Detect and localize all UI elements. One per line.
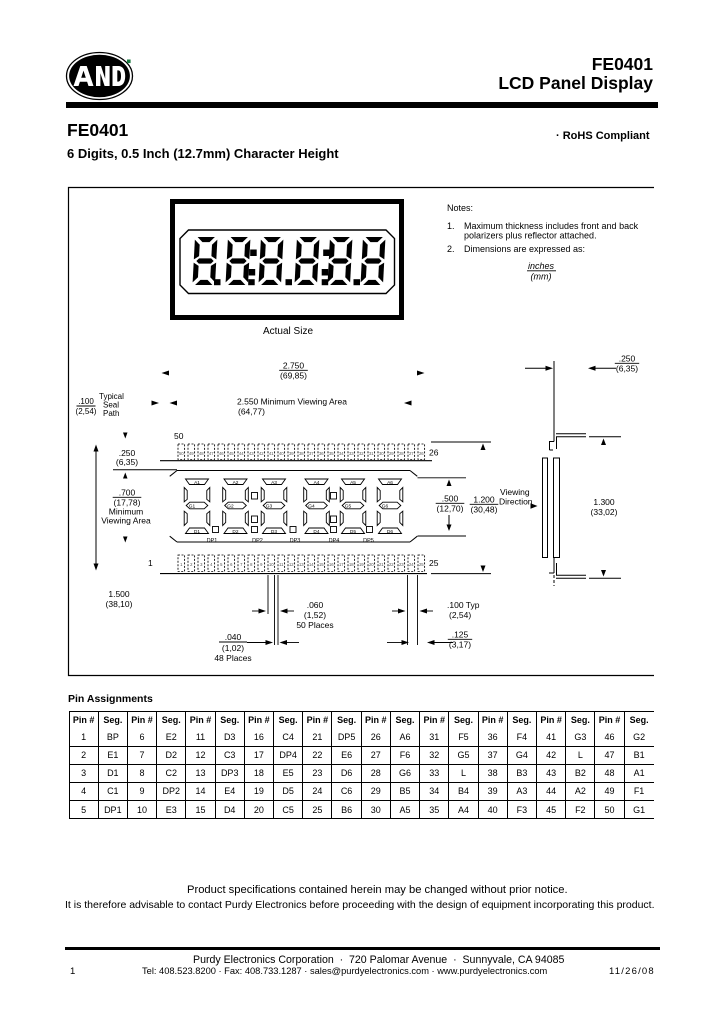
svg-text:36: 36 xyxy=(319,451,324,456)
svg-text:D3: D3 xyxy=(271,529,277,535)
svg-text:.100 Typ: .100 Typ xyxy=(447,600,480,610)
svg-text:DP3: DP3 xyxy=(290,538,301,544)
svg-text:31: 31 xyxy=(369,451,374,456)
svg-text:11: 11 xyxy=(279,562,284,567)
svg-text:A5: A5 xyxy=(350,480,356,486)
svg-text:(12,70): (12,70) xyxy=(437,504,464,514)
svg-text:48: 48 xyxy=(199,451,204,456)
svg-text:12: 12 xyxy=(289,562,294,567)
svg-text:Maximum thickness includes fro: Maximum thickness includes front and bac… xyxy=(464,221,639,231)
svg-text:46: 46 xyxy=(219,451,224,456)
svg-text:(mm): (mm) xyxy=(531,272,552,282)
svg-text:G2: G2 xyxy=(227,504,234,510)
svg-text:.250: .250 xyxy=(619,354,636,364)
svg-text:D6: D6 xyxy=(387,529,393,535)
svg-text:Dimensions are expressed as:: Dimensions are expressed as: xyxy=(464,244,585,254)
svg-text:.125: .125 xyxy=(452,630,469,640)
svg-text:27: 27 xyxy=(409,451,414,456)
svg-text:20: 20 xyxy=(369,562,374,567)
svg-text:18: 18 xyxy=(349,562,354,567)
svg-text:50 Places: 50 Places xyxy=(296,620,333,630)
svg-text:G4: G4 xyxy=(308,504,315,510)
svg-text:(30,48): (30,48) xyxy=(471,505,498,515)
svg-text:A4: A4 xyxy=(314,480,320,486)
svg-text:26: 26 xyxy=(419,451,424,456)
svg-text:50: 50 xyxy=(174,431,184,441)
svg-text:G3: G3 xyxy=(266,504,273,510)
svg-text:21: 21 xyxy=(379,562,384,567)
svg-text:G5: G5 xyxy=(345,504,352,510)
svg-text:41: 41 xyxy=(269,451,274,456)
svg-text:(2,54): (2,54) xyxy=(76,407,97,416)
svg-text:DP1: DP1 xyxy=(207,538,218,544)
svg-text:10: 10 xyxy=(269,562,274,567)
svg-text:25: 25 xyxy=(429,558,439,568)
svg-text:D1: D1 xyxy=(194,529,200,535)
svg-text:D2: D2 xyxy=(232,529,238,535)
svg-text:17: 17 xyxy=(339,562,344,567)
svg-text:.500: .500 xyxy=(442,494,459,504)
svg-text:39: 39 xyxy=(289,451,294,456)
svg-text:(1,02): (1,02) xyxy=(222,643,244,653)
svg-text:50: 50 xyxy=(179,451,184,456)
svg-text:38: 38 xyxy=(299,451,304,456)
svg-text:DP2: DP2 xyxy=(252,538,263,544)
svg-text:Actual Size: Actual Size xyxy=(263,326,313,337)
svg-text:Viewing Area: Viewing Area xyxy=(101,516,151,526)
svg-text:32: 32 xyxy=(359,451,364,456)
svg-text:13: 13 xyxy=(299,562,304,567)
svg-text:44: 44 xyxy=(239,451,244,456)
svg-text:A1: A1 xyxy=(194,480,200,486)
svg-text:9: 9 xyxy=(260,562,263,567)
svg-text:16: 16 xyxy=(329,562,334,567)
svg-text:2.: 2. xyxy=(447,244,455,254)
svg-text:(69,85): (69,85) xyxy=(280,371,307,381)
svg-text:6: 6 xyxy=(230,562,233,567)
svg-text:35: 35 xyxy=(329,451,334,456)
svg-text:45: 45 xyxy=(229,451,234,456)
svg-text:.040: .040 xyxy=(225,632,242,642)
svg-text:D4: D4 xyxy=(313,529,319,535)
svg-text:19: 19 xyxy=(359,562,364,567)
svg-text:29: 29 xyxy=(389,451,394,456)
svg-text:47: 47 xyxy=(209,451,214,456)
svg-text:43: 43 xyxy=(249,451,254,456)
svg-text:34: 34 xyxy=(339,451,344,456)
svg-text:2.750: 2.750 xyxy=(283,361,305,371)
svg-text:(3,17): (3,17) xyxy=(449,640,471,650)
svg-text:42: 42 xyxy=(259,451,264,456)
svg-text:A3: A3 xyxy=(271,480,277,486)
svg-text:1.: 1. xyxy=(447,221,455,231)
svg-text:A6: A6 xyxy=(387,480,393,486)
svg-text:inches: inches xyxy=(528,261,555,271)
svg-text:1: 1 xyxy=(148,558,153,568)
svg-text:1.500: 1.500 xyxy=(108,589,130,599)
svg-text:DP4: DP4 xyxy=(329,538,340,544)
svg-text:1.200: 1.200 xyxy=(473,495,495,505)
svg-text:33: 33 xyxy=(349,451,354,456)
svg-text:25: 25 xyxy=(419,562,424,567)
svg-text:(64,77): (64,77) xyxy=(238,407,265,417)
svg-text:Notes:: Notes: xyxy=(447,203,473,213)
svg-text:polarizers plus reflector atta: polarizers plus reflector attached. xyxy=(464,231,597,241)
svg-text:DP5: DP5 xyxy=(363,538,374,544)
svg-text:(1,52): (1,52) xyxy=(304,610,326,620)
svg-text:3: 3 xyxy=(200,562,203,567)
svg-text:49: 49 xyxy=(189,451,194,456)
svg-text:G6: G6 xyxy=(382,504,389,510)
svg-text:22: 22 xyxy=(389,562,394,567)
svg-text:5: 5 xyxy=(220,562,223,567)
svg-text:Direction: Direction xyxy=(499,497,533,507)
svg-text:2.550 Minimum Viewing Area: 2.550 Minimum Viewing Area xyxy=(237,397,347,407)
svg-text:(6,35): (6,35) xyxy=(616,364,638,374)
svg-text:28: 28 xyxy=(399,451,404,456)
svg-text:8: 8 xyxy=(250,562,253,567)
svg-text:2: 2 xyxy=(190,562,193,567)
svg-text:D5: D5 xyxy=(350,529,356,535)
svg-text:.060: .060 xyxy=(307,600,324,610)
svg-text:(38,10): (38,10) xyxy=(106,599,133,609)
svg-text:26: 26 xyxy=(429,448,439,458)
svg-text:G1: G1 xyxy=(189,504,196,510)
svg-text:48 Places: 48 Places xyxy=(214,653,251,663)
svg-text:(33,02): (33,02) xyxy=(591,507,618,517)
svg-text:7: 7 xyxy=(240,562,243,567)
svg-text:23: 23 xyxy=(399,562,404,567)
svg-text:15: 15 xyxy=(319,562,324,567)
svg-text:1.300: 1.300 xyxy=(593,497,615,507)
svg-text:1: 1 xyxy=(180,562,183,567)
svg-text:.700: .700 xyxy=(119,488,136,498)
svg-text:Viewing: Viewing xyxy=(500,487,530,497)
svg-text:14: 14 xyxy=(309,562,314,567)
svg-text:Path: Path xyxy=(103,409,119,418)
svg-text:(6,35): (6,35) xyxy=(116,457,138,467)
svg-text:.100: .100 xyxy=(78,397,94,406)
svg-text:37: 37 xyxy=(309,451,314,456)
svg-text:A2: A2 xyxy=(233,480,239,486)
svg-text:30: 30 xyxy=(379,451,384,456)
svg-text:(2,54): (2,54) xyxy=(449,610,471,620)
svg-text:40: 40 xyxy=(279,451,284,456)
svg-text:24: 24 xyxy=(409,562,414,567)
svg-text:4: 4 xyxy=(210,562,213,567)
